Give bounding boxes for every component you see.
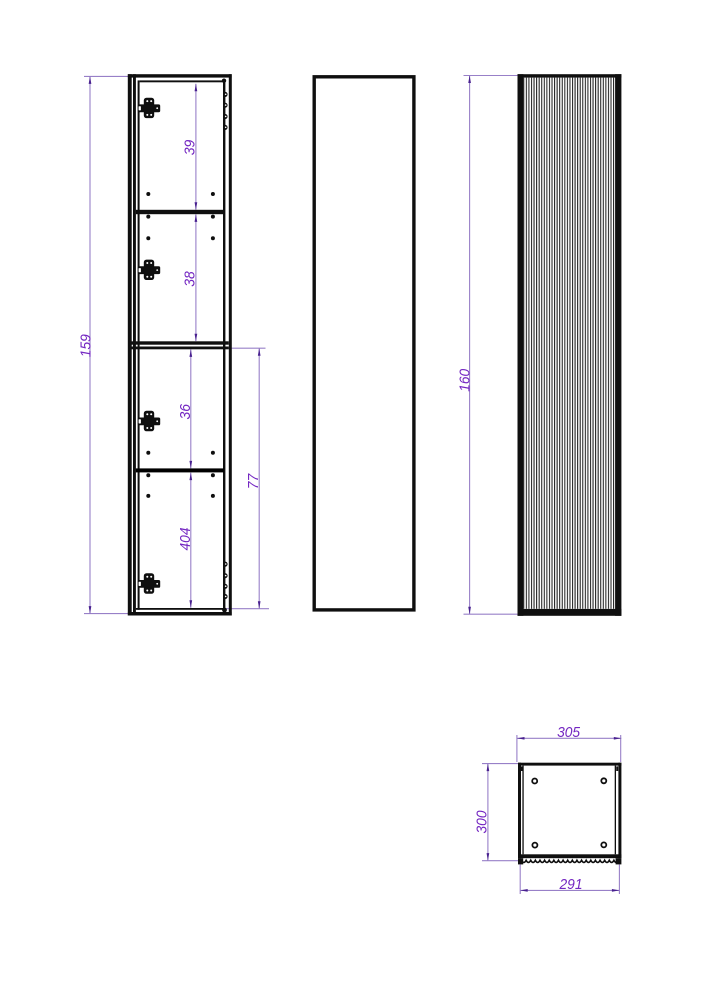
svg-text:300: 300 xyxy=(475,811,491,834)
svg-text:160: 160 xyxy=(457,369,473,392)
svg-text:39: 39 xyxy=(183,140,199,156)
svg-text:77: 77 xyxy=(246,473,262,489)
svg-text:404: 404 xyxy=(178,528,194,551)
svg-text:159: 159 xyxy=(78,334,94,357)
svg-text:305: 305 xyxy=(557,725,581,741)
svg-text:36: 36 xyxy=(178,403,194,419)
svg-text:291: 291 xyxy=(559,877,583,893)
svg-text:38: 38 xyxy=(183,270,199,286)
